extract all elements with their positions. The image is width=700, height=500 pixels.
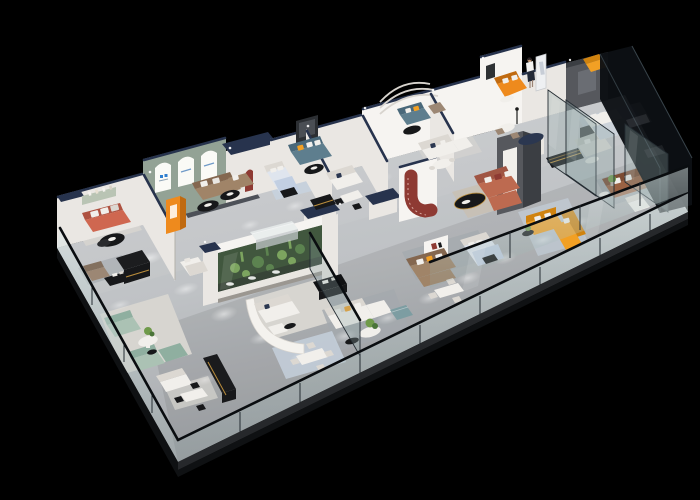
brand-logo-mark2 (165, 174, 168, 177)
poster-stand (536, 54, 546, 91)
arch-window-2 (178, 157, 194, 187)
curved-red-feature-wall (399, 156, 437, 222)
showroom-render-canvas: 3D isometric cutaway render of a furnitu… (0, 0, 700, 500)
terrarium-left-pillar (203, 244, 218, 306)
brand-logo-mark (160, 175, 163, 178)
wall-art-frame (486, 63, 495, 80)
showroom-3d-floorplan (0, 0, 700, 500)
arch-window-3 (201, 151, 217, 181)
